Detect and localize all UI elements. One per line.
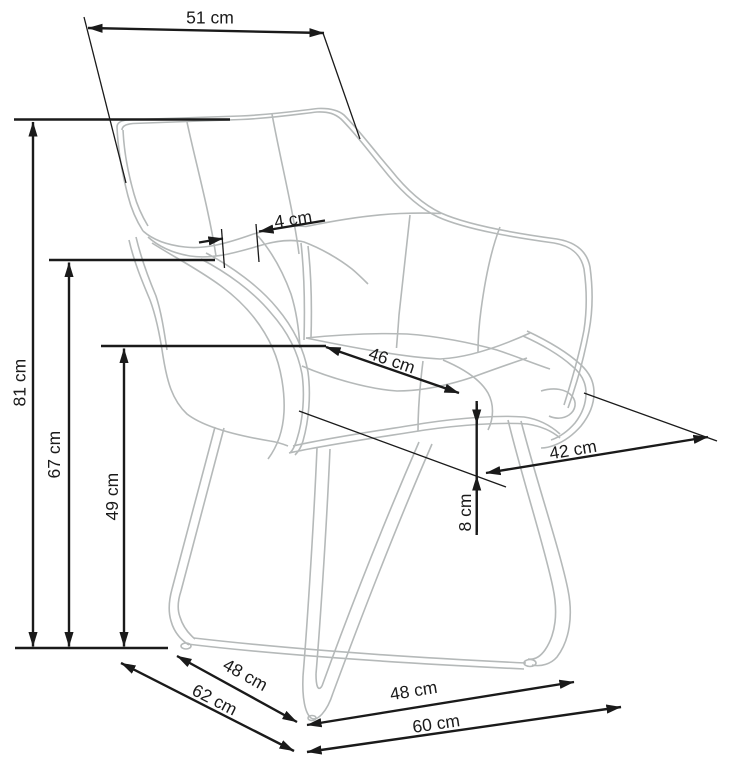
svg-text:8 cm: 8 cm	[455, 494, 475, 532]
svg-text:49 cm: 49 cm	[102, 473, 122, 521]
svg-text:81 cm: 81 cm	[10, 359, 30, 407]
svg-text:67 cm: 67 cm	[44, 431, 64, 479]
svg-text:51 cm: 51 cm	[186, 8, 234, 28]
